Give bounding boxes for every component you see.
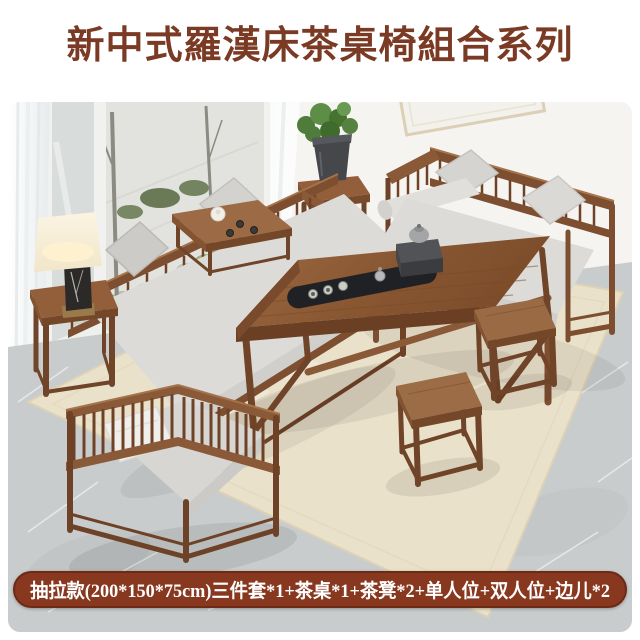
spec-banner-text: 抽拉款(200*150*75cm)三件套*1+茶桌*1+茶凳*2+单人位+双人位… [30,576,610,603]
product-title: 新中式羅漢床茶桌椅組合系列 [0,22,640,71]
product-photo [8,102,632,632]
product-card: 新中式羅漢床茶桌椅組合系列 [0,0,640,640]
spec-banner: 抽拉款(200*150*75cm)三件套*1+茶桌*1+茶凳*2+单人位+双人位… [13,571,627,608]
